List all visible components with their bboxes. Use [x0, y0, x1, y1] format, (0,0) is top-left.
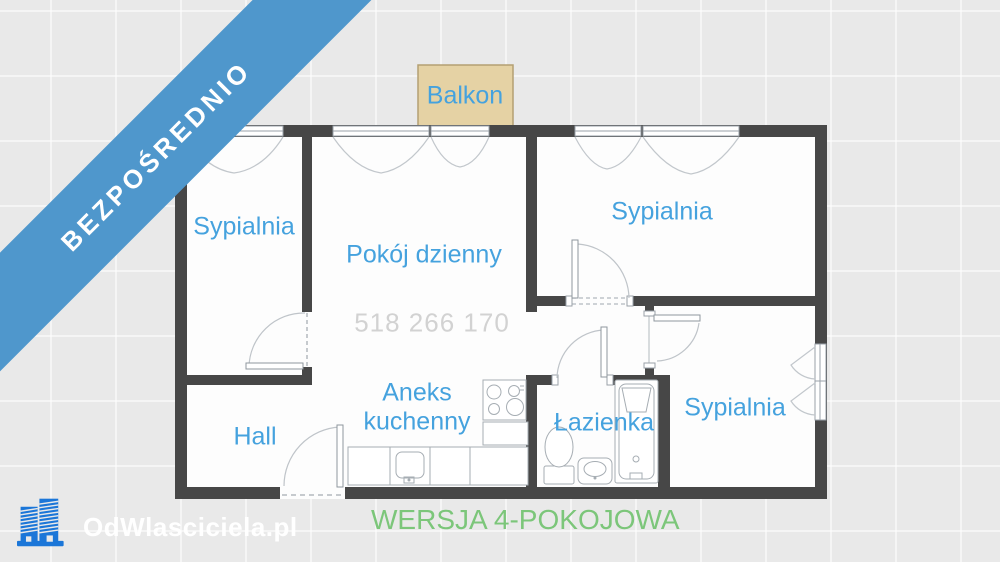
bathroom-sink	[578, 458, 612, 484]
floorplan-page: Balkon Sypialnia Pokój dzienny Sypialnia…	[0, 0, 1000, 562]
brand-name: OdWlasciciela.pl	[83, 512, 298, 543]
room-label-hall: Hall	[233, 423, 276, 452]
room-label-bedroom-top-right: Sypialnia	[611, 198, 712, 227]
kitchen-counter	[483, 422, 528, 445]
room-label-bathroom: Łazienka	[554, 409, 654, 438]
version-caption: WERSJA 4-POKOJOWA	[371, 504, 680, 536]
kitchen-label-line2: kuchenny	[363, 407, 470, 436]
room-label-kitchen: Aneks kuchenny	[363, 378, 470, 436]
kitchen-counter-bottom	[348, 447, 528, 485]
balcony-label: Balkon	[427, 82, 503, 111]
phone-watermark: 518 266 170	[354, 308, 510, 339]
room-label-living-room: Pokój dzienny	[346, 241, 502, 270]
kitchen-label-line1: Aneks	[363, 378, 470, 407]
room-label-bedroom-top-left: Sypialnia	[193, 213, 294, 242]
room-label-bedroom-bottom-right: Sypialnia	[684, 394, 785, 423]
buildings-icon	[16, 496, 70, 548]
